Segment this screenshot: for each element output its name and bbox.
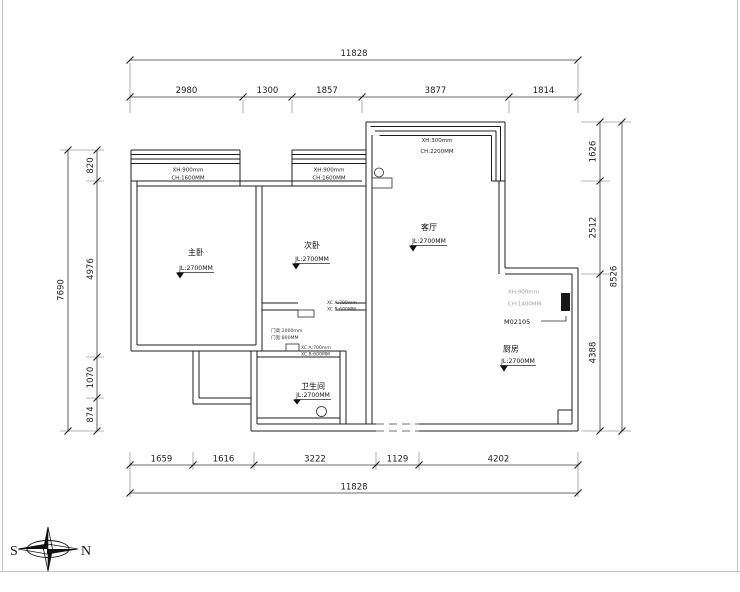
dim-label: 1070: [86, 367, 96, 389]
room-height-note: JL:2700MM: [411, 238, 446, 245]
compass-east-label: N: [81, 544, 91, 559]
room-name-living: 客厅: [421, 222, 437, 232]
small-note: XC B:600MM: [327, 307, 356, 313]
dim-label: 1857: [316, 86, 338, 96]
floor-plan-canvas: 11828 2980 1300 1857 3877 1814 1659 1616…: [0, 0, 740, 592]
dim-label: 874: [86, 406, 96, 422]
room-name-master: 主卧: [188, 247, 204, 257]
small-note: 门高:2000mm: [271, 327, 303, 334]
dimension-chain-right: 1626 2512 4388 8526: [581, 119, 631, 435]
dim-label: 3222: [304, 455, 326, 465]
dim-top-total: 11828: [340, 49, 367, 59]
dim-label: 4202: [488, 455, 510, 465]
window-note: XH:900mm: [173, 168, 204, 174]
window-note: XH:900mm: [314, 168, 345, 174]
duct-bump: [286, 344, 299, 351]
column-circle-icon: [375, 168, 384, 177]
room-height-note: JL:2700MM: [178, 265, 213, 272]
dim-bottom-total: 11828: [340, 483, 367, 493]
small-note: XC A:700mm: [327, 300, 357, 306]
dimension-chain-top: 11828 2980 1300 1857 3877 1814: [127, 49, 582, 113]
room-name-kitchen: 厨房: [503, 344, 519, 354]
dim-right-total: 8526: [610, 266, 620, 288]
compass-fill: [18, 544, 47, 549]
door-tag: M02105: [504, 318, 530, 326]
window-note-faint: XH:900mm: [508, 290, 539, 296]
floor-drain-icon: [317, 407, 327, 417]
window-note-faint: CH:1400MM: [508, 302, 542, 308]
door-panel-icon: [561, 293, 570, 311]
dim-label: 4388: [589, 342, 599, 364]
leader-triangle-icon: [292, 264, 300, 270]
room-labels: 主卧 JL:2700MM 次卧 JL:2700MM 客厅 JL:2700MM 厨…: [176, 222, 536, 405]
small-note: XC A:700mm: [301, 345, 331, 351]
dim-label: 1129: [387, 455, 409, 465]
dim-label: 1659: [151, 455, 173, 465]
small-note: XC B:600MM: [301, 352, 330, 358]
dimension-chain-bottom: 1659 1616 3222 1129 4202 11828: [127, 452, 582, 497]
dim-label: 4976: [86, 258, 96, 280]
compass-rose: S N: [10, 527, 91, 571]
drawing-frame: [0, 0, 740, 572]
dim-label: 2512: [589, 217, 599, 239]
leader-triangle-icon: [176, 273, 184, 279]
dim-label: 2980: [176, 86, 198, 96]
room-height-note: JL:2700MM: [294, 256, 329, 263]
dim-label: 1616: [213, 455, 235, 465]
dim-label: 3877: [425, 86, 447, 96]
entry-door-opening: [376, 424, 419, 431]
leader-triangle-icon: [293, 400, 301, 405]
small-note: 门宽:800MM: [271, 334, 298, 341]
dim-label: 820: [86, 157, 96, 173]
door-tag-leader: [541, 316, 566, 321]
leader-triangle-icon: [500, 366, 508, 372]
room-height-note: JL:2700MM: [500, 358, 535, 365]
window-note: CH:1600MM: [171, 176, 205, 182]
compass-west-label: S: [10, 544, 18, 559]
door-jamb-tab: [298, 310, 314, 317]
room-height-note: JL:2700MM: [295, 392, 330, 399]
dim-left-total: 7690: [57, 279, 67, 301]
wall-pier: [372, 178, 392, 188]
dim-label: 1300: [257, 86, 279, 96]
small-annotations: XC A:700mm XC B:600MM 门高:2000mm 门宽:800MM…: [271, 300, 530, 358]
window-note: CH:2200MM: [420, 149, 454, 155]
leader-triangle-icon: [409, 246, 417, 252]
dim-label: 1814: [533, 86, 555, 96]
window-note: CH:1600MM: [312, 176, 346, 182]
dim-label: 1626: [589, 141, 599, 163]
dimension-chain-left: 7690 820 4976 1070 874: [57, 147, 105, 435]
room-name-bathroom: 卫生间: [301, 381, 325, 391]
room-name-second: 次卧: [304, 240, 320, 250]
window-note: XH:300mm: [422, 138, 453, 144]
